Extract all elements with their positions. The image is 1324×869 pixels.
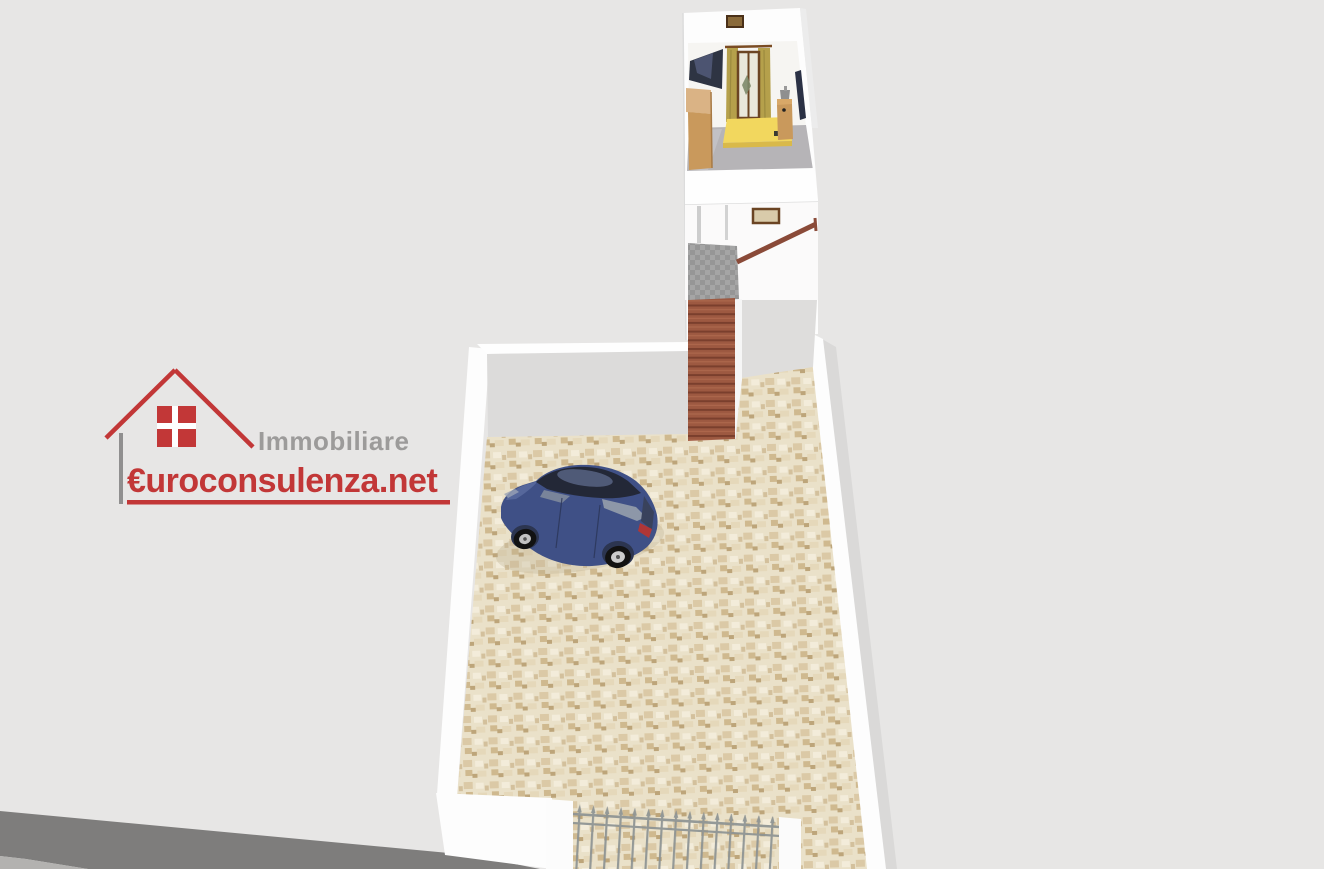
top-band-frame — [727, 16, 743, 27]
logo-underline — [127, 500, 450, 505]
hall-window-slit-2 — [725, 205, 728, 240]
nightstand-knob — [782, 108, 786, 112]
property-3d-render: Immobiliare €uroconsulenza.net — [0, 0, 1324, 869]
courtyard-top-wall-face — [487, 351, 688, 437]
stair-landing — [688, 243, 739, 302]
hall-picture-frame — [753, 209, 779, 223]
logo-text-line2: €uroconsulenza.net — [127, 462, 437, 500]
logo-text-line1: Immobiliare — [258, 426, 409, 456]
bedroom-window — [725, 46, 772, 122]
stairwell-right-wall-face — [741, 300, 817, 378]
curtain-rod — [725, 46, 772, 47]
house-wall-line — [119, 433, 123, 504]
staircase — [688, 298, 735, 441]
curtain-left — [726, 48, 738, 122]
dividing-wall-band — [685, 168, 818, 205]
wardrobe — [686, 88, 712, 170]
scene-canvas: Immobiliare €uroconsulenza.net — [0, 0, 1324, 869]
gate-pillar-left — [546, 799, 573, 869]
hall-window-slit-1 — [697, 206, 701, 243]
bedroom — [686, 41, 813, 171]
gate-pillar-right — [779, 817, 801, 869]
